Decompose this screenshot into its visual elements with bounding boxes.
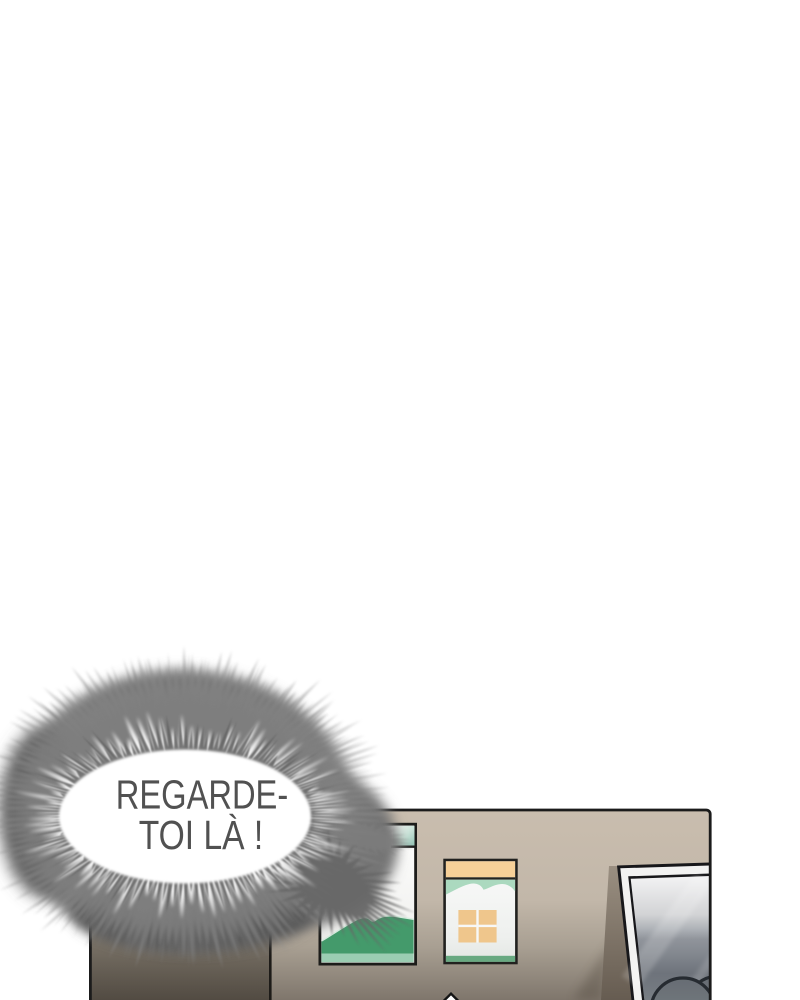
svg-text:TOI LÀ !: TOI LÀ ! (139, 812, 264, 858)
svg-text:REGARDE-: REGARDE- (116, 772, 289, 818)
